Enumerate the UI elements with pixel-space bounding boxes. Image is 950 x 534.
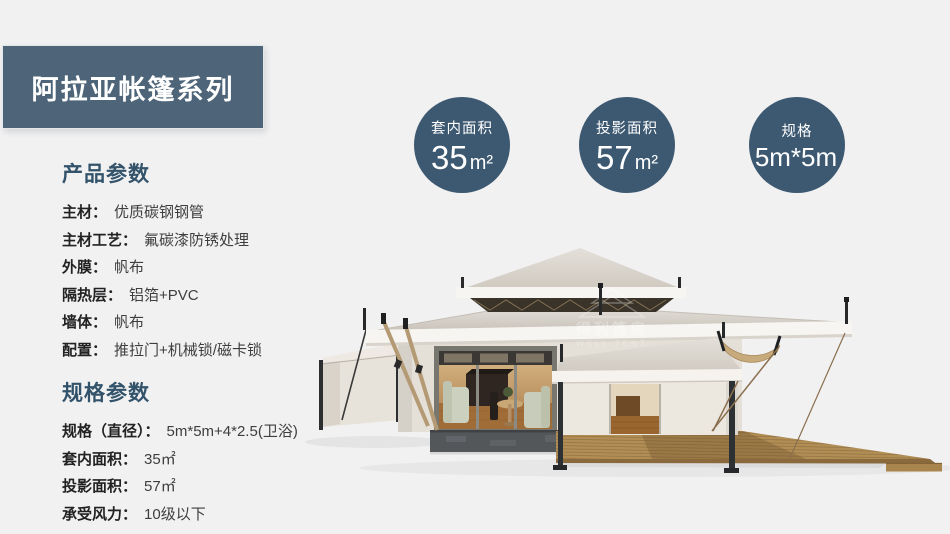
annex-doorway xyxy=(609,384,661,434)
glass-window xyxy=(434,346,557,432)
tent-illustration: 得利篷房 WELL TENT xyxy=(0,0,950,534)
pagoda-top-roof xyxy=(456,248,686,312)
watermark-en: WELL TENT xyxy=(576,339,647,348)
page-background: 阿拉亚帐篷系列 套内面积 35m² 投影面积 57m² 规格 5m*5m 产品参… xyxy=(0,0,950,534)
watermark-cn: 得利篷房 xyxy=(575,320,648,338)
